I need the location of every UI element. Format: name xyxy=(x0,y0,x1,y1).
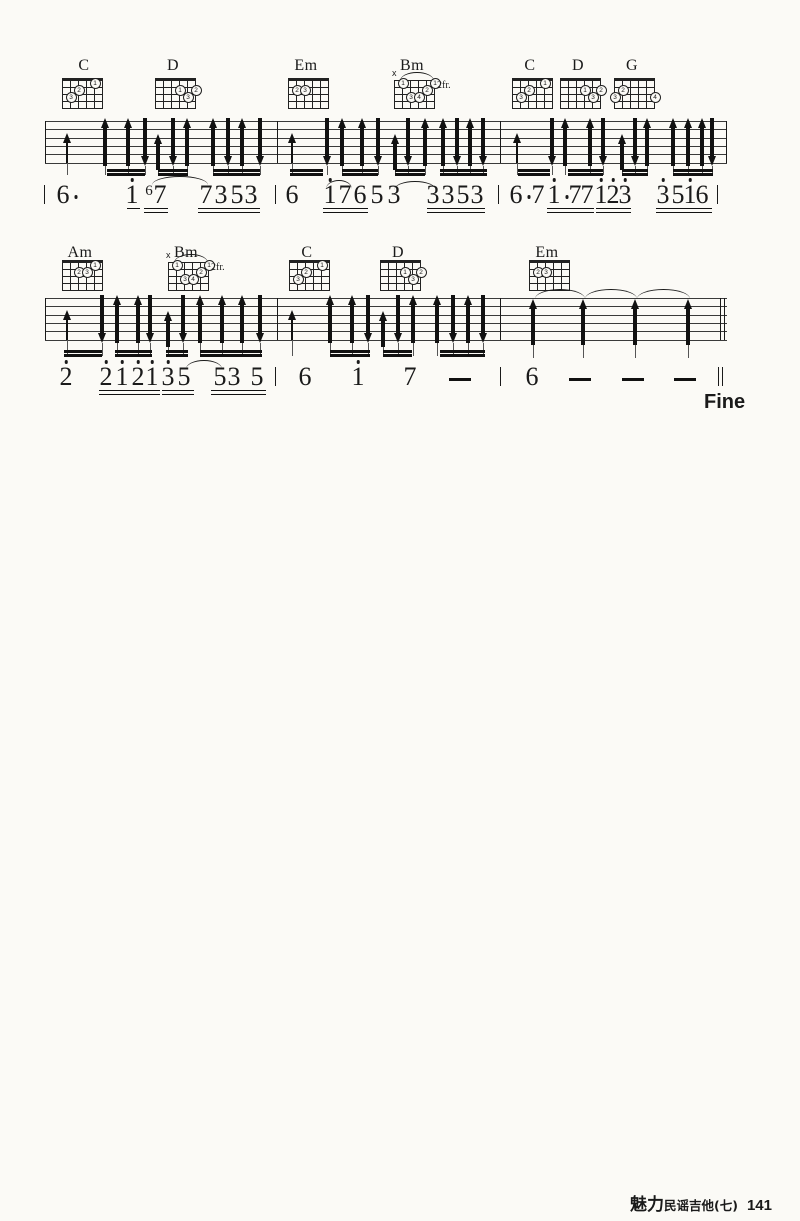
octave-dot xyxy=(136,360,140,364)
rhythm-underline xyxy=(198,208,260,209)
note-number: 3 xyxy=(471,182,484,208)
note-number: 3 xyxy=(245,182,258,208)
whole-note-dash xyxy=(674,378,696,381)
rhythm-underline xyxy=(323,208,368,209)
rhythm-underline xyxy=(656,212,712,213)
strum-up-arrow-shaft xyxy=(466,303,469,343)
strum-up-arrow-shaft xyxy=(220,303,223,343)
beam xyxy=(200,350,262,353)
chord-grid-fret-line xyxy=(288,101,329,102)
strum-up-arrow-shaft xyxy=(435,303,438,343)
strum-up-arrow-shaft xyxy=(381,319,384,347)
note-number: 1 xyxy=(352,364,365,390)
beam xyxy=(342,173,378,176)
strum-up-arrow-shaft xyxy=(468,126,471,166)
strum-down-arrow-shaft xyxy=(258,295,261,335)
strum-down-arrow-shaft xyxy=(633,118,636,158)
strum-down-arrow-shaft xyxy=(455,118,458,158)
note-stem xyxy=(67,163,68,175)
octave-dot xyxy=(104,360,108,364)
strum-up-arrow-shaft xyxy=(671,126,674,166)
rhythm-underline xyxy=(656,208,712,209)
note-number: 1 xyxy=(116,364,129,390)
strum-up-arrow-shaft xyxy=(581,307,585,345)
chord-grid-fret-line xyxy=(614,108,655,109)
measure-bar xyxy=(500,367,501,386)
strum-up-arrow-shaft xyxy=(103,126,106,166)
note-number: 5 xyxy=(251,364,264,390)
finger-dot: 3 xyxy=(66,92,77,103)
rhythm-underline xyxy=(427,212,485,213)
note-stem xyxy=(437,343,438,356)
note-number: 7 xyxy=(200,182,213,208)
strum-down-arrow-shaft xyxy=(451,295,454,335)
finger-dot: 3 xyxy=(516,92,527,103)
chord-nut xyxy=(155,78,196,81)
rhythm-underline xyxy=(323,212,368,213)
strum-up-arrow-shaft xyxy=(563,126,566,166)
beam xyxy=(518,173,550,176)
strum-up-arrow-shaft xyxy=(441,126,444,166)
note-stem xyxy=(378,166,379,175)
strum-up-arrow-shaft xyxy=(156,142,159,170)
chord-grid-fret-line xyxy=(62,290,103,291)
note-number: 7 xyxy=(154,182,167,208)
barline xyxy=(500,298,501,340)
whole-tie-arc xyxy=(535,289,585,299)
beam xyxy=(290,169,323,172)
measure-bar xyxy=(275,185,276,204)
strum-down-arrow-shaft xyxy=(366,295,369,335)
chord-grid-fret-line xyxy=(560,108,601,109)
beam xyxy=(158,169,188,172)
beam xyxy=(440,350,485,353)
beam xyxy=(115,354,152,357)
rhythm-underline xyxy=(162,394,194,395)
finger-dot: 3 xyxy=(610,92,621,103)
footer-series-title: 民谣吉他(七) xyxy=(664,1195,738,1214)
octave-dot xyxy=(150,360,154,364)
strum-up-arrow-shaft xyxy=(423,126,426,166)
strum-up-arrow-shaft xyxy=(588,126,591,166)
note-stem xyxy=(292,340,293,356)
beam xyxy=(673,173,713,176)
beam xyxy=(213,169,260,172)
strum-down-arrow-shaft xyxy=(100,295,103,335)
measure-bar xyxy=(717,185,718,204)
whole-note-dash xyxy=(622,378,644,381)
beam xyxy=(166,354,188,357)
strum-down-arrow-shaft xyxy=(550,118,553,158)
rhythm-underline xyxy=(99,390,160,391)
barre-arc xyxy=(174,254,208,263)
octave-dot xyxy=(130,178,134,182)
note-number: 5 xyxy=(457,182,470,208)
chord-grid-fret-line xyxy=(614,101,655,102)
staff-line xyxy=(45,306,727,307)
beam xyxy=(342,169,378,172)
rhythm-underline xyxy=(99,394,160,395)
finger-dot: 4 xyxy=(414,92,425,103)
strum-down-arrow-shaft xyxy=(481,295,484,335)
staff-line xyxy=(45,323,727,324)
scanned-sheet-music-page: C123D123Em23Bm11234x2fr.C123D123G2346167… xyxy=(0,0,800,1221)
strum-down-arrow-shaft xyxy=(325,118,328,158)
beam xyxy=(64,354,102,357)
note-number: 3 xyxy=(619,182,632,208)
footer-page-number: 141 xyxy=(747,1197,772,1214)
rhythm-underline xyxy=(211,390,266,391)
note-number: 2 xyxy=(60,364,73,390)
finger-dot: 1 xyxy=(317,260,328,271)
chord-grid-fret-line xyxy=(529,283,570,284)
note-stem xyxy=(603,166,604,175)
beam xyxy=(330,350,370,353)
note-number: 7 xyxy=(532,182,545,208)
note-stem xyxy=(635,345,636,358)
octave-dot xyxy=(688,178,692,182)
barline xyxy=(277,298,278,340)
note-number: 6 xyxy=(526,364,539,390)
chord-grid-fret-line xyxy=(512,108,553,109)
beam xyxy=(115,350,152,353)
strum-up-arrow-shaft xyxy=(240,303,243,343)
strum-up-arrow-shaft xyxy=(686,126,689,166)
finger-dot: 4 xyxy=(188,274,199,285)
strum-down-arrow-shaft xyxy=(396,295,399,335)
octave-dot xyxy=(120,360,124,364)
chord-grid-fret-line xyxy=(288,108,329,109)
rhythm-underline xyxy=(596,208,631,209)
octave-dot xyxy=(611,178,615,182)
note-number: 5 xyxy=(231,182,244,208)
strum-up-arrow-shaft xyxy=(645,126,648,166)
note-number: 6 xyxy=(299,364,312,390)
note-stem xyxy=(145,166,146,175)
note-stem xyxy=(688,345,689,358)
rhythm-underline xyxy=(144,208,168,209)
note-stem xyxy=(327,166,328,175)
note-number: 6 xyxy=(286,182,299,208)
strum-down-arrow-shaft xyxy=(601,118,604,158)
augmentation-dot xyxy=(74,195,78,199)
beam xyxy=(622,169,648,172)
octave-dot xyxy=(356,360,360,364)
rhythm-underline xyxy=(547,208,594,209)
beam xyxy=(330,354,370,357)
note-number: 6 xyxy=(354,182,367,208)
barline xyxy=(45,298,46,340)
finger-dot: 3 xyxy=(300,85,311,96)
rhythm-underline xyxy=(144,212,168,213)
finger-dot: 1 xyxy=(540,78,551,89)
strum-down-arrow-shaft xyxy=(258,118,261,158)
beam xyxy=(290,173,323,176)
strum-up-arrow-shaft xyxy=(340,126,343,166)
tie-arc xyxy=(152,176,208,185)
note-number: 3 xyxy=(215,182,228,208)
barline xyxy=(45,121,46,163)
strum-down-arrow-shaft xyxy=(143,118,146,158)
whole-tie-arc xyxy=(585,289,637,299)
barline xyxy=(277,121,278,163)
whole-tie-arc xyxy=(637,289,690,299)
note-stem xyxy=(260,166,261,175)
note-stem xyxy=(105,166,106,175)
note-number: 6 xyxy=(696,182,709,208)
mute-x-icon: x xyxy=(392,68,397,78)
finger-dot: 3 xyxy=(541,267,552,278)
page-footer: 魅力 民谣吉他(七) 141 xyxy=(630,1190,772,1215)
chord-nut xyxy=(288,78,329,81)
strum-up-arrow-shaft xyxy=(633,307,637,345)
fret-position-label: 2fr. xyxy=(211,262,225,273)
chord-name-label: C xyxy=(524,57,535,75)
note-number: 1 xyxy=(146,364,159,390)
note-number: 3 xyxy=(162,364,175,390)
strum-up-arrow-shaft xyxy=(516,141,519,163)
barline xyxy=(726,121,727,163)
note-number: 6 xyxy=(510,182,523,208)
chord-nut xyxy=(380,260,421,263)
barline xyxy=(724,298,725,340)
strum-up-arrow-shaft xyxy=(328,303,331,343)
finger-dot: 1 xyxy=(90,78,101,89)
mute-x-icon: x xyxy=(166,250,171,260)
note-stem xyxy=(565,166,566,175)
beam xyxy=(518,169,550,172)
note-number: 3 xyxy=(442,182,455,208)
footer-series-brand: 魅力 xyxy=(630,1190,664,1215)
note-number: 1 xyxy=(548,182,561,208)
finger-dot: 3 xyxy=(588,92,599,103)
chord-grid-fret-line xyxy=(394,108,435,109)
staff-line xyxy=(45,129,727,130)
finger-dot: 3 xyxy=(408,274,419,285)
fine-marking: Fine xyxy=(704,391,745,414)
chord-name-label: C xyxy=(78,57,89,75)
octave-dot xyxy=(661,178,665,182)
note-number: 1 xyxy=(126,182,139,208)
finger-dot: 3 xyxy=(183,92,194,103)
barline xyxy=(500,121,501,163)
beam xyxy=(673,169,713,172)
beam xyxy=(107,173,145,176)
chord-nut xyxy=(560,78,601,81)
strum-up-arrow-shaft xyxy=(350,303,353,343)
beam xyxy=(440,173,487,176)
chord-name-label: Em xyxy=(294,57,317,75)
beam xyxy=(622,173,648,176)
rhythm-underline xyxy=(127,208,140,209)
note-number: 3 xyxy=(657,182,670,208)
beam xyxy=(107,169,145,172)
strum-down-arrow-shaft xyxy=(226,118,229,158)
note-number: 2 xyxy=(132,364,145,390)
strum-up-arrow-shaft xyxy=(240,126,243,166)
measure-bar xyxy=(718,367,719,386)
octave-dot xyxy=(552,178,556,182)
finger-dot: 4 xyxy=(650,92,661,103)
note-stem xyxy=(583,345,584,358)
fret-position-label: 2fr. xyxy=(437,80,451,91)
strum-up-arrow-shaft xyxy=(620,142,623,170)
finger-dot: 3 xyxy=(82,267,93,278)
chord-nut xyxy=(529,260,570,263)
strum-up-arrow-shaft xyxy=(66,318,69,340)
strum-down-arrow-shaft xyxy=(710,118,713,158)
beam xyxy=(213,173,260,176)
strum-up-arrow-shaft xyxy=(211,126,214,166)
octave-dot xyxy=(166,360,170,364)
measure-bar xyxy=(275,367,276,386)
beam xyxy=(395,173,425,176)
beam xyxy=(166,350,188,353)
chord-grid-fret-line xyxy=(62,108,103,109)
note-number: 5 xyxy=(371,182,384,208)
beam xyxy=(568,173,603,176)
note-number: 3 xyxy=(228,364,241,390)
strum-down-arrow-shaft xyxy=(181,295,184,335)
note-number: 7 xyxy=(581,182,594,208)
chord-grid-fret-line xyxy=(289,290,330,291)
note-number: 7 xyxy=(404,364,417,390)
beam xyxy=(568,169,603,172)
note-number: 2 xyxy=(100,364,113,390)
chord-name-label: D xyxy=(167,57,179,75)
barline xyxy=(720,298,721,340)
strum-up-arrow-shaft xyxy=(185,126,188,166)
strum-up-arrow-shaft xyxy=(411,303,414,343)
beam xyxy=(64,350,102,353)
octave-dot xyxy=(64,360,68,364)
measure-bar xyxy=(498,185,499,204)
strum-down-arrow-shaft xyxy=(406,118,409,158)
chord-nut xyxy=(614,78,655,81)
measure-bar xyxy=(44,185,45,204)
chord-grid-fret-line xyxy=(380,290,421,291)
augmentation-dot xyxy=(527,195,531,199)
strum-down-arrow-shaft xyxy=(481,118,484,158)
octave-dot xyxy=(623,178,627,182)
strum-up-arrow-shaft xyxy=(66,141,69,163)
strum-up-arrow-shaft xyxy=(115,303,118,343)
strum-down-arrow-shaft xyxy=(171,118,174,158)
whole-note-dash xyxy=(449,378,471,381)
measure-bar xyxy=(722,367,723,386)
rhythm-underline xyxy=(211,394,266,395)
rhythm-underline xyxy=(427,208,485,209)
beam xyxy=(200,354,262,357)
rhythm-underline xyxy=(596,212,631,213)
strum-up-arrow-shaft xyxy=(360,126,363,166)
chord-grid-fret-line xyxy=(155,108,196,109)
whole-note-dash xyxy=(569,378,591,381)
strum-up-arrow-shaft xyxy=(700,126,703,166)
chord-name-label: D xyxy=(572,57,584,75)
strum-up-arrow-shaft xyxy=(531,307,535,345)
chord-grid-fret-line xyxy=(62,283,103,284)
rhythm-underline xyxy=(547,212,594,213)
staff-line xyxy=(45,121,727,122)
beam xyxy=(383,350,412,353)
note-stem xyxy=(533,345,534,358)
note-number: 6 xyxy=(145,184,153,199)
strum-down-arrow-shaft xyxy=(148,295,151,335)
strum-up-arrow-shaft xyxy=(393,142,396,170)
strum-up-arrow-shaft xyxy=(166,319,169,347)
strum-up-arrow-shaft xyxy=(291,318,294,340)
strum-up-arrow-shaft xyxy=(686,307,690,345)
rhythm-underline xyxy=(162,390,194,391)
strum-up-arrow-shaft xyxy=(136,303,139,343)
note-stem xyxy=(552,166,553,175)
finger-dot: 3 xyxy=(293,274,304,285)
strum-up-arrow-shaft xyxy=(126,126,129,166)
beam xyxy=(440,169,487,172)
note-stem xyxy=(425,166,426,175)
note-stem xyxy=(413,343,414,356)
staff-line xyxy=(45,146,727,147)
rhythm-underline xyxy=(198,212,260,213)
note-number: 6 xyxy=(57,182,70,208)
note-stem xyxy=(102,343,103,356)
strum-up-arrow-shaft xyxy=(198,303,201,343)
chord-name-label: G xyxy=(626,57,638,75)
barre-arc xyxy=(400,72,434,81)
beam xyxy=(395,169,425,172)
strum-up-arrow-shaft xyxy=(291,141,294,163)
strum-down-arrow-shaft xyxy=(376,118,379,158)
beam xyxy=(440,354,485,357)
octave-dot xyxy=(599,178,603,182)
chord-grid-fret-line xyxy=(168,290,209,291)
beam xyxy=(383,354,412,357)
